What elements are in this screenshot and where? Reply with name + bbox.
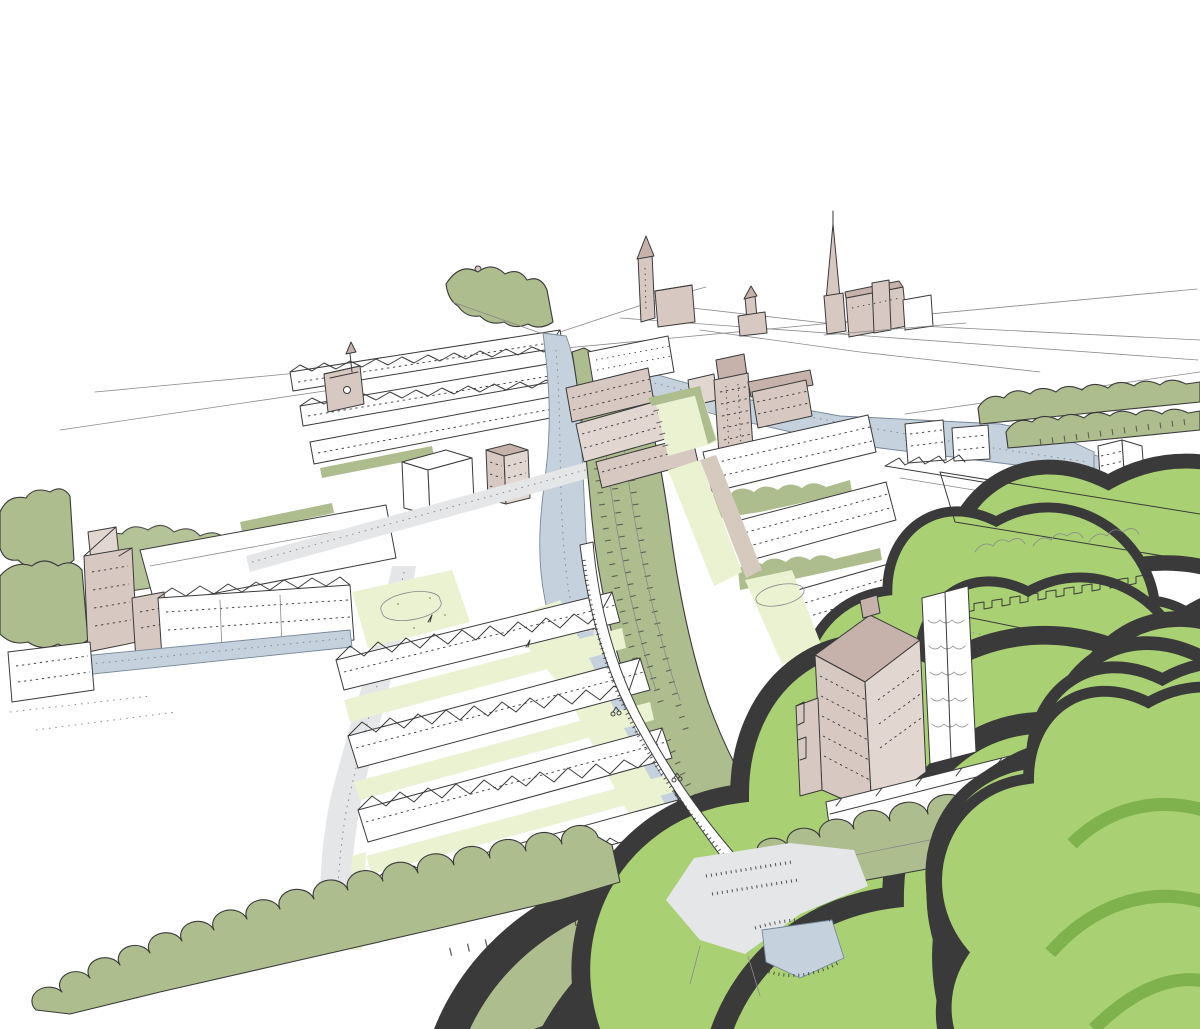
illustration-canvas: Hand-drawn aerial perspective sketch of … (0, 0, 1200, 1029)
masterplan-sketch: Hand-drawn aerial perspective sketch of … (0, 0, 1200, 1029)
balcony-tower-east (922, 586, 976, 764)
